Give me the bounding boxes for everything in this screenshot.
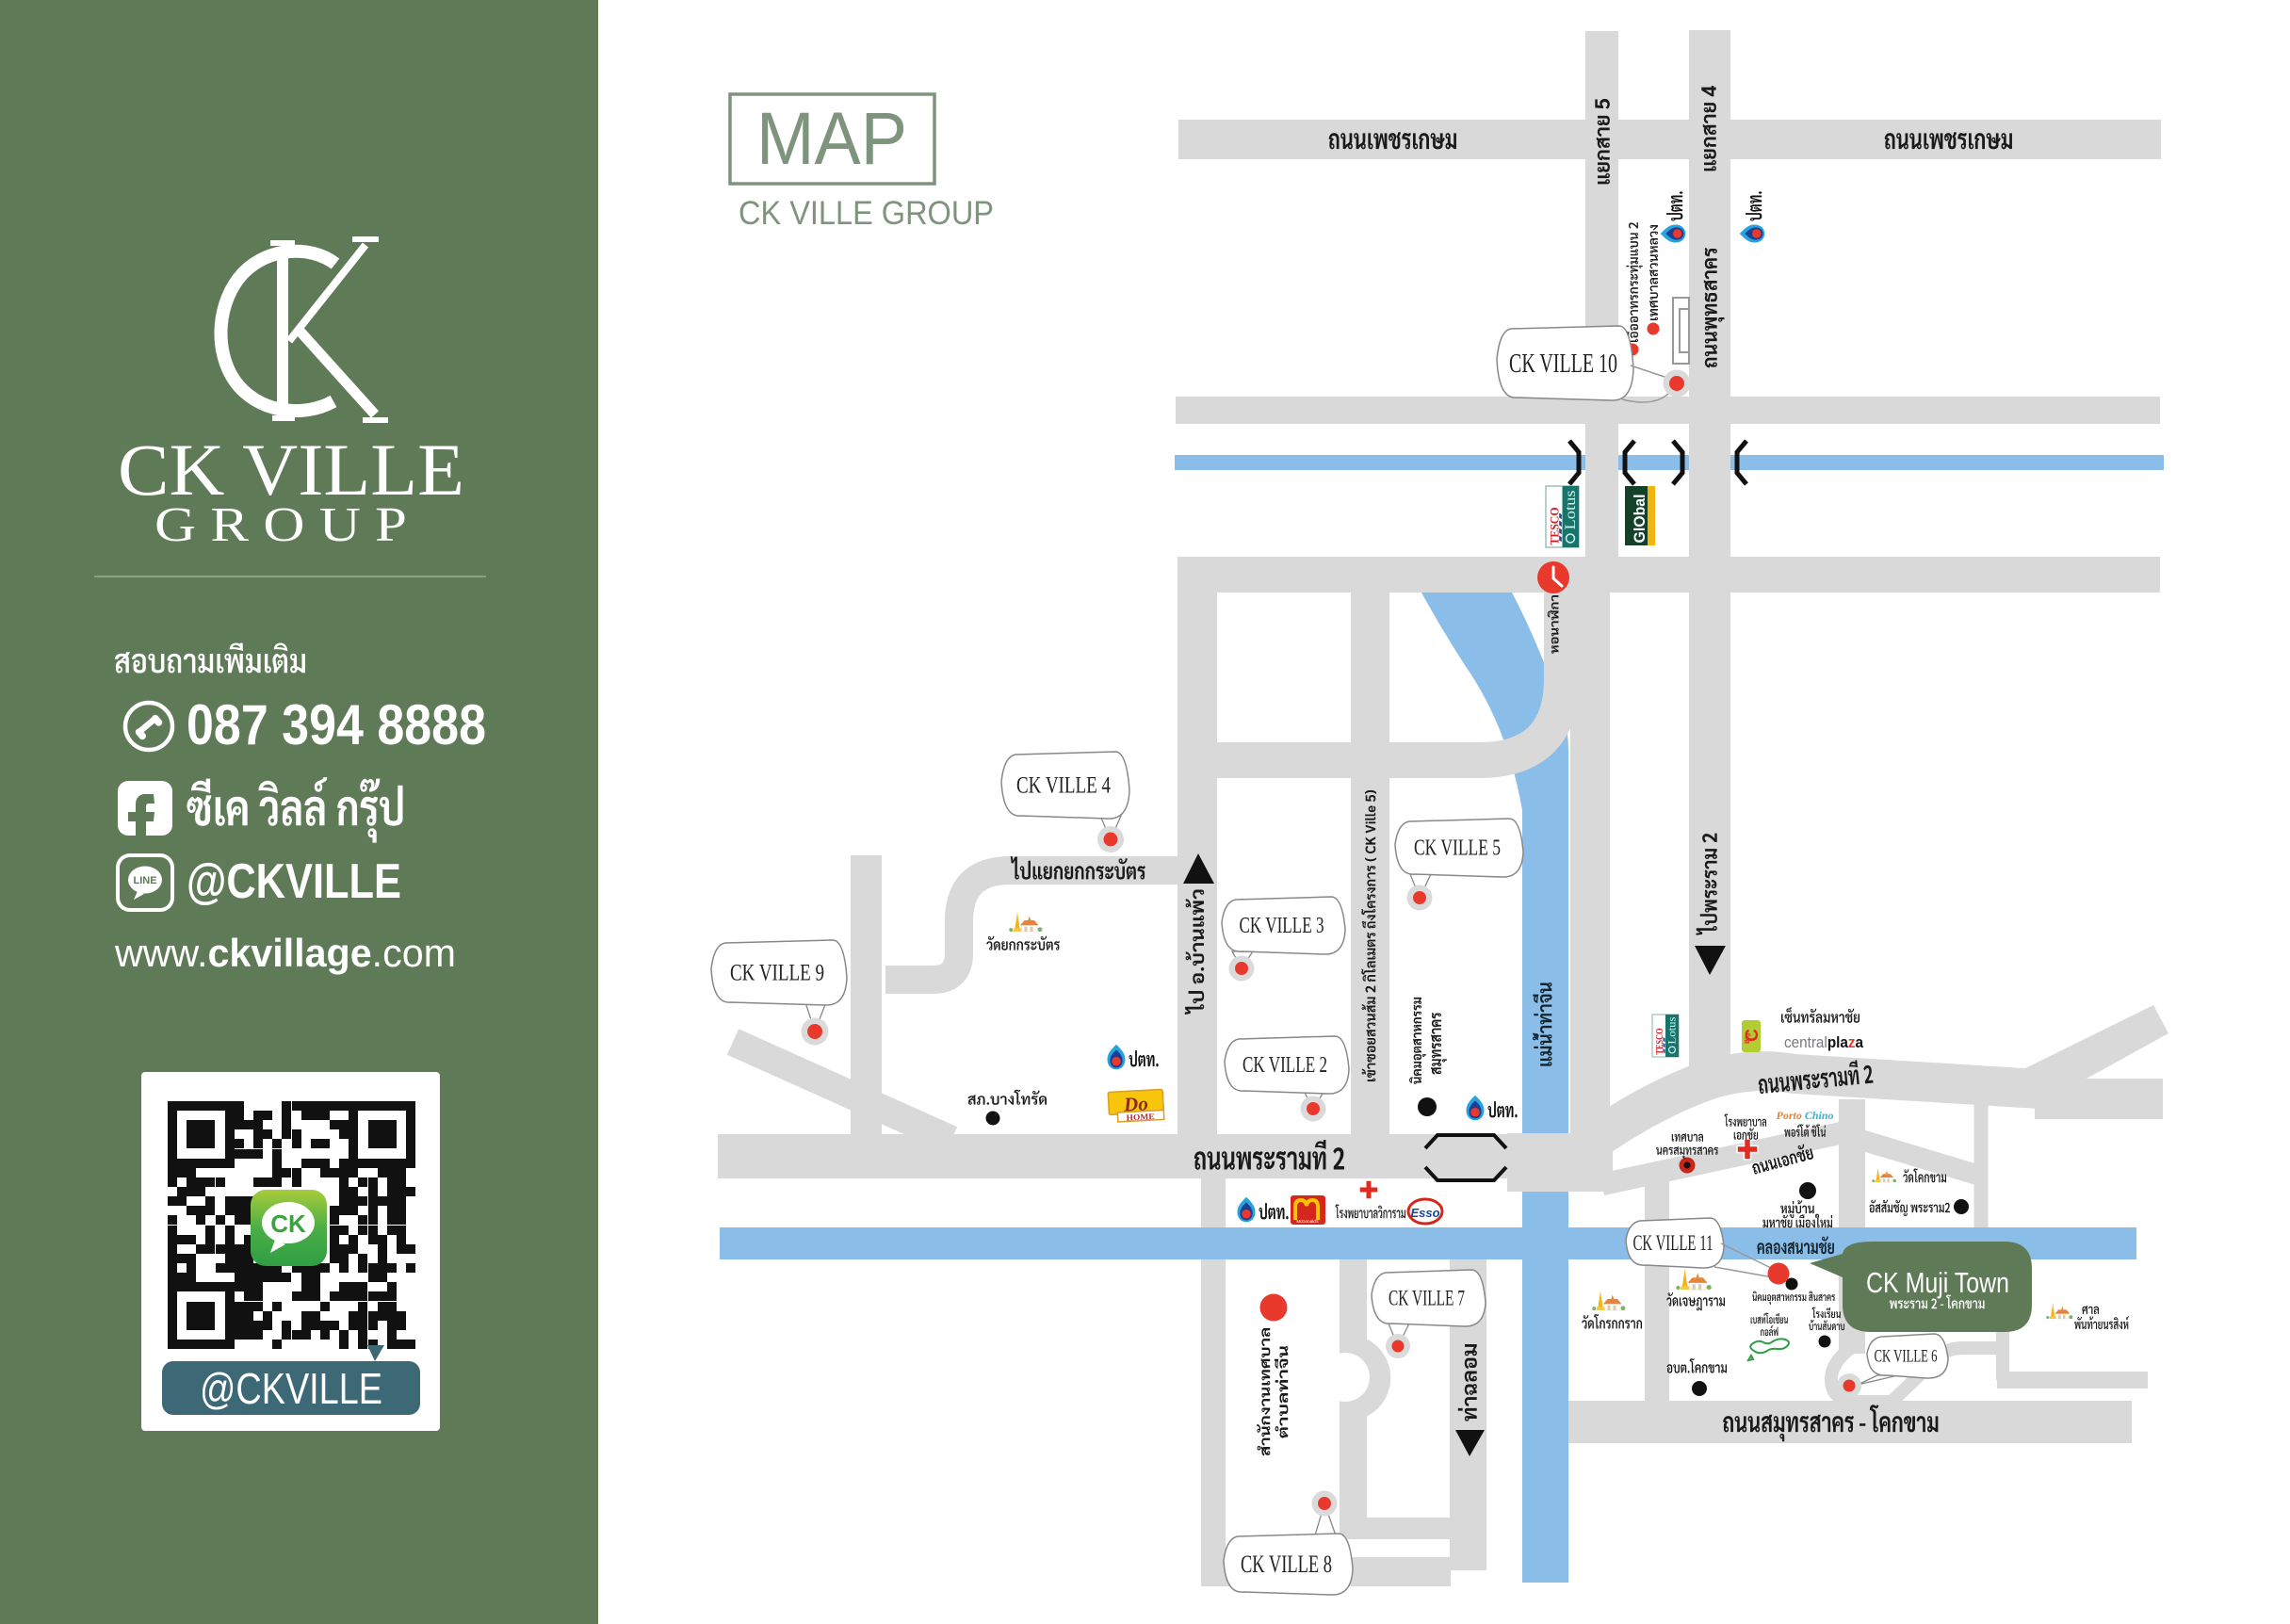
svg-text:centralplaza: centralplaza	[1784, 1033, 1863, 1051]
svg-text:Porto Chino: Porto Chino	[1776, 1109, 1833, 1122]
svg-text:Big: Big	[1745, 1033, 1751, 1044]
svg-text:CK VILLE 9: CK VILLE 9	[730, 961, 824, 986]
svg-text:CK VILLE 11: CK VILLE 11	[1633, 1231, 1713, 1255]
svg-text:www.ckvillage.com: www.ckvillage.com	[114, 931, 456, 975]
svg-text:LINE: LINE	[133, 875, 156, 886]
svg-text:087 394 8888: 087 394 8888	[187, 693, 486, 756]
svg-text:CK VILLE 5: CK VILLE 5	[1414, 836, 1501, 861]
svg-text:CK VILLE 7: CK VILLE 7	[1389, 1286, 1465, 1309]
svg-text:CK VILLE 8: CK VILLE 8	[1241, 1551, 1332, 1578]
svg-text:Lotus: Lotus	[1665, 1016, 1679, 1044]
svg-text:CK VILLE 4: CK VILLE 4	[1016, 773, 1111, 799]
svg-text:@CKVILLE: @CKVILLE	[200, 1364, 382, 1413]
svg-text:GlObal: GlObal	[1631, 495, 1648, 544]
svg-text:McDonald's: McDonald's	[1296, 1219, 1319, 1224]
svg-text:CK: CK	[270, 1210, 306, 1238]
svg-text:@CKVILLE: @CKVILLE	[187, 854, 401, 909]
svg-text:CK VILLE 2: CK VILLE 2	[1242, 1053, 1327, 1078]
svg-text:CK VILLE 3: CK VILLE 3	[1240, 914, 1324, 938]
svg-text:CK VILLE 10: CK VILLE 10	[1509, 349, 1617, 379]
svg-text:HOME: HOME	[1126, 1112, 1154, 1123]
svg-text:MAP: MAP	[756, 96, 907, 180]
svg-text:Esso: Esso	[1410, 1206, 1439, 1220]
svg-text:Lotus: Lotus	[1563, 491, 1579, 530]
svg-text:CK VILLE 6: CK VILLE 6	[1875, 1346, 1938, 1366]
svg-text:CK Muji Town: CK Muji Town	[1866, 1266, 2009, 1299]
svg-text:G R O U P: G R O U P	[154, 498, 407, 552]
svg-text:CK VILLE GROUP: CK VILLE GROUP	[739, 195, 994, 232]
